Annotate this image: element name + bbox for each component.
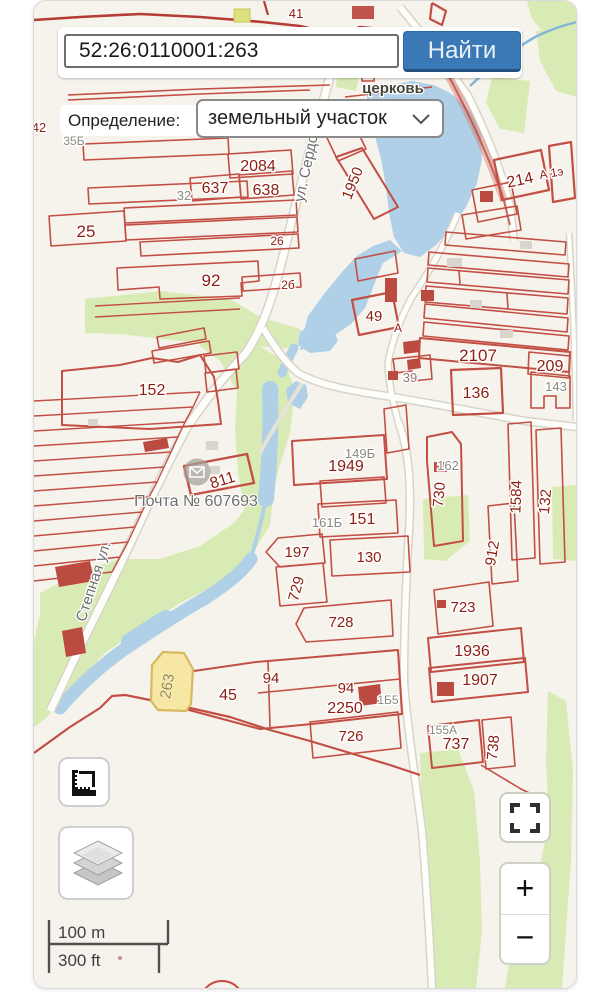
svg-text:130: 130 (356, 549, 381, 566)
svg-text:100 m: 100 m (58, 923, 105, 942)
svg-text:2б: 2б (281, 278, 295, 292)
svg-text:42: 42 (34, 120, 46, 135)
svg-text:136: 136 (463, 385, 490, 402)
svg-text:162: 162 (437, 458, 459, 473)
svg-text:25: 25 (77, 222, 96, 241)
svg-text:161Б: 161Б (312, 515, 342, 530)
svg-text:41: 41 (289, 6, 303, 21)
svg-text:738: 738 (484, 734, 503, 760)
svg-text:737: 737 (443, 736, 470, 753)
svg-text:92: 92 (202, 271, 221, 290)
svg-text:132: 132 (536, 488, 555, 514)
svg-text:155А: 155А (429, 723, 457, 737)
svg-text:2084: 2084 (240, 158, 276, 175)
svg-text:1Б5: 1Б5 (377, 693, 399, 707)
svg-text:728: 728 (328, 614, 353, 631)
svg-text:637: 637 (202, 180, 229, 197)
svg-text:26: 26 (270, 234, 284, 248)
svg-text:151: 151 (349, 511, 376, 528)
svg-text:209: 209 (537, 358, 564, 375)
svg-text:45: 45 (219, 687, 237, 704)
svg-text:152: 152 (139, 382, 166, 399)
svg-text:638: 638 (253, 182, 280, 199)
svg-text:723: 723 (450, 599, 475, 616)
svg-text:197: 197 (284, 544, 309, 561)
svg-text:94: 94 (338, 680, 355, 697)
svg-text:церковь: церковь (362, 80, 424, 97)
svg-text:726: 726 (338, 728, 363, 745)
svg-text:300 ft: 300 ft (58, 951, 101, 970)
svg-text:Почта № 607693: Почта № 607693 (134, 493, 258, 510)
svg-text:143: 143 (545, 379, 567, 394)
svg-text:2250: 2250 (327, 700, 363, 717)
svg-text:А: А (394, 321, 402, 335)
svg-text:1936: 1936 (454, 643, 490, 660)
svg-text:1584: 1584 (507, 480, 525, 514)
svg-text:149Б: 149Б (345, 446, 375, 461)
svg-text:1907: 1907 (462, 672, 498, 689)
svg-text:32: 32 (177, 188, 191, 203)
svg-text:39: 39 (403, 370, 417, 385)
svg-text:2107: 2107 (459, 346, 497, 365)
svg-text:730: 730 (430, 481, 449, 507)
svg-text:94: 94 (263, 670, 280, 687)
svg-text:35Б: 35Б (63, 134, 84, 148)
svg-text:49: 49 (366, 308, 383, 325)
